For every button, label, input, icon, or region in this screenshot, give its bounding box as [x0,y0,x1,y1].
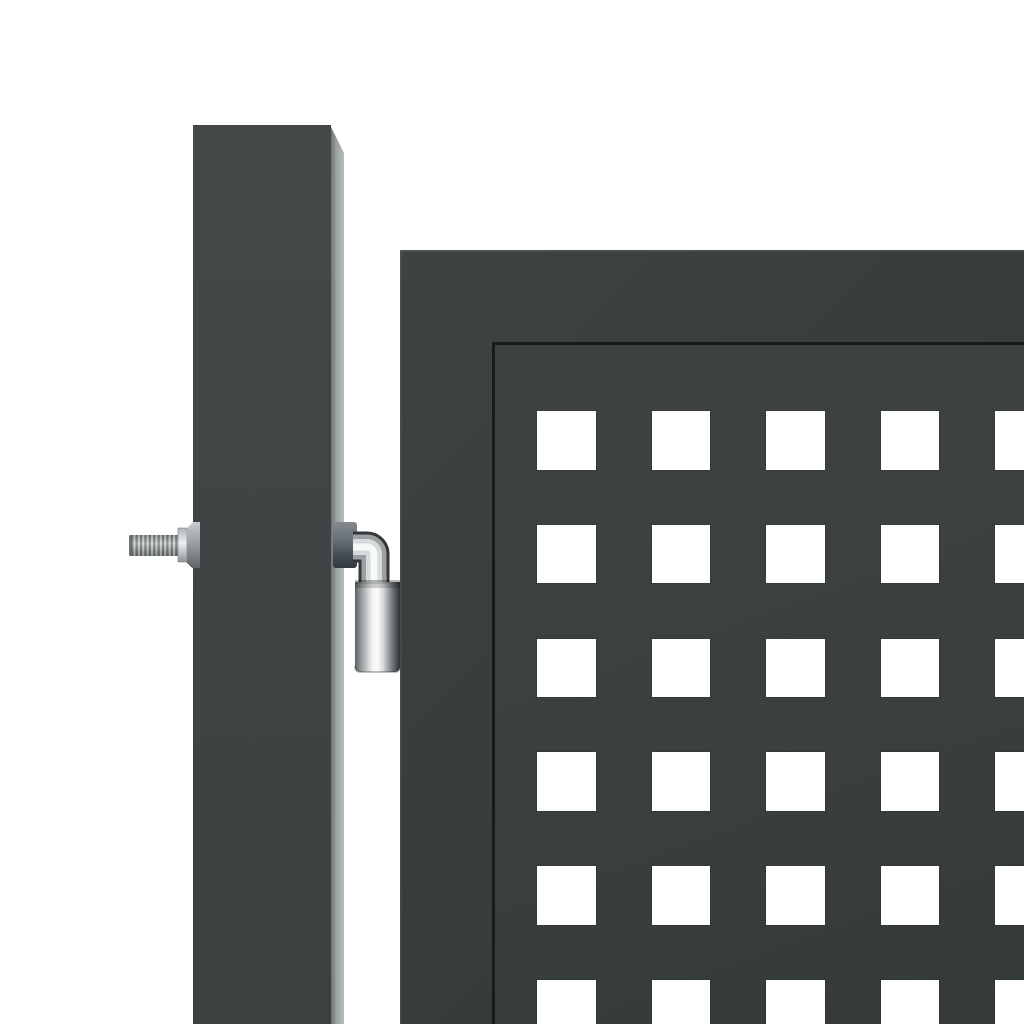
lattice-square [766,866,825,925]
lattice-square [537,980,596,1024]
lattice-square [537,752,596,811]
lattice-square [537,866,596,925]
gate-hinge [325,510,410,685]
lattice-square [995,411,1024,470]
lattice-square [995,866,1024,925]
lattice-square [995,639,1024,698]
lattice-square [881,411,940,470]
lattice-square [995,752,1024,811]
lattice-square [766,411,825,470]
gate-post-front-face [193,125,331,1024]
bolt-hex-nut [187,522,200,568]
lattice-square [652,752,711,811]
lattice-square [766,525,825,584]
lattice-square [537,411,596,470]
bolt-washer [178,528,187,562]
lattice-square [881,752,940,811]
lattice-square [537,639,596,698]
lattice-square [881,980,940,1024]
lattice-square [881,525,940,584]
lattice-square [995,525,1024,584]
hinge-sleeve [355,580,400,672]
lattice-square [881,866,940,925]
lattice-square [652,980,711,1024]
lattice-square [652,525,711,584]
lattice-square [537,525,596,584]
lattice-square [652,866,711,925]
gate-lattice-panel [492,342,1024,1024]
bolt-threaded-rod [129,535,182,556]
lattice-square [766,980,825,1024]
lattice-square [881,639,940,698]
lattice-square [652,639,711,698]
lattice-square [995,980,1024,1024]
lattice-square [766,639,825,698]
threaded-bolt [125,515,205,575]
lattice-square [766,752,825,811]
lattice-square [652,411,711,470]
gate-frame [400,250,1024,1024]
